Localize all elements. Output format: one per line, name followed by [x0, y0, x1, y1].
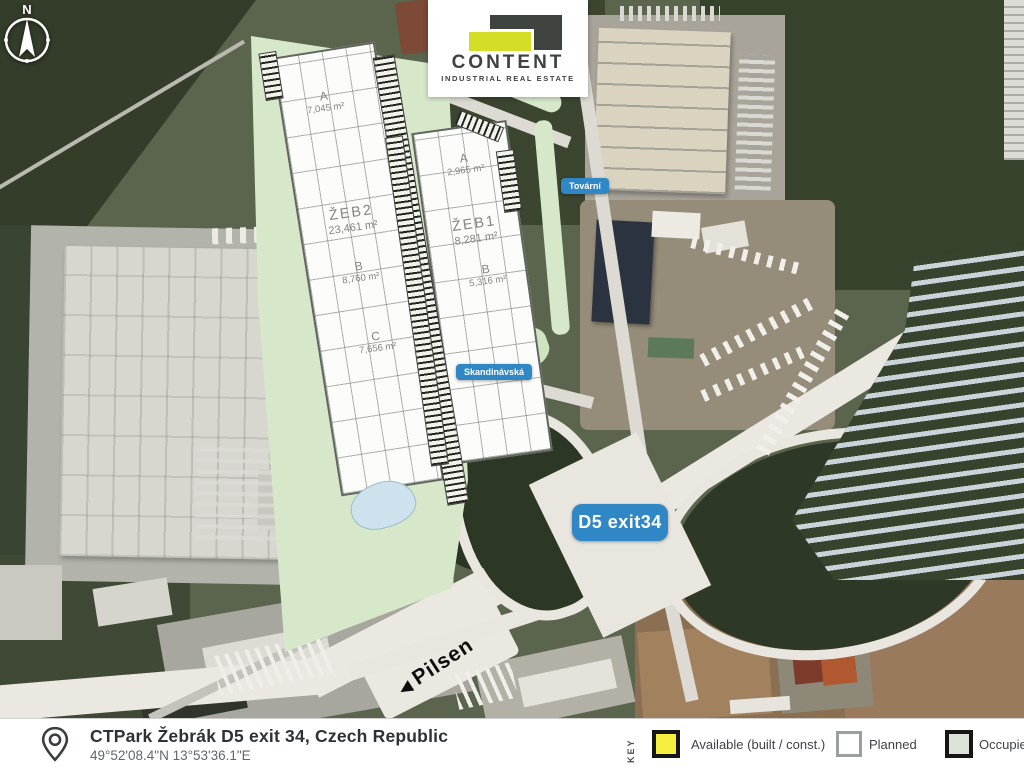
logo-company-name: CONTENT [428, 52, 588, 74]
legend-label-planned: Planned [869, 737, 917, 752]
legend-label-available: Available (built / const.) [691, 737, 825, 752]
map-canvas: A 7,045 m² ŽEB2 23,461 m² B 8,760 m² C 7… [0, 0, 1024, 768]
compass-rose [2, 13, 52, 69]
road-label-tovarni: Tovární [561, 178, 609, 194]
legend-swatch-occupied [945, 730, 973, 758]
road-label-skandinavska: Skandinávská [456, 364, 532, 380]
site-plan-overlay: A 7,045 m² ŽEB2 23,461 m² B 8,760 m² C 7… [0, 0, 1024, 718]
legend-label-occupied: Occupied [979, 737, 1024, 752]
park-coordinates: 49°52'08.4"N 13°53'36.1"E [90, 748, 251, 763]
compass-icon: N [2, 2, 52, 72]
park-title: CTPark Žebrák D5 exit 34, Czech Republic [90, 726, 448, 747]
location-pin-icon [36, 724, 74, 764]
road-label-d5-exit34: D5 exit34 [572, 504, 668, 541]
plan-green-strip-2 [534, 120, 571, 336]
logo-tagline: INDUSTRIAL REAL ESTATE [428, 74, 588, 83]
footer-bar: CTPark Žebrák D5 exit 34, Czech Republic… [0, 718, 1024, 768]
logo-yellow-block [466, 29, 534, 54]
legend-swatch-available [652, 730, 680, 758]
key-label: KEY [626, 727, 636, 763]
legend-swatch-planned [836, 731, 862, 757]
content-logo: CONTENT INDUSTRIAL REAL ESTATE [428, 0, 588, 97]
